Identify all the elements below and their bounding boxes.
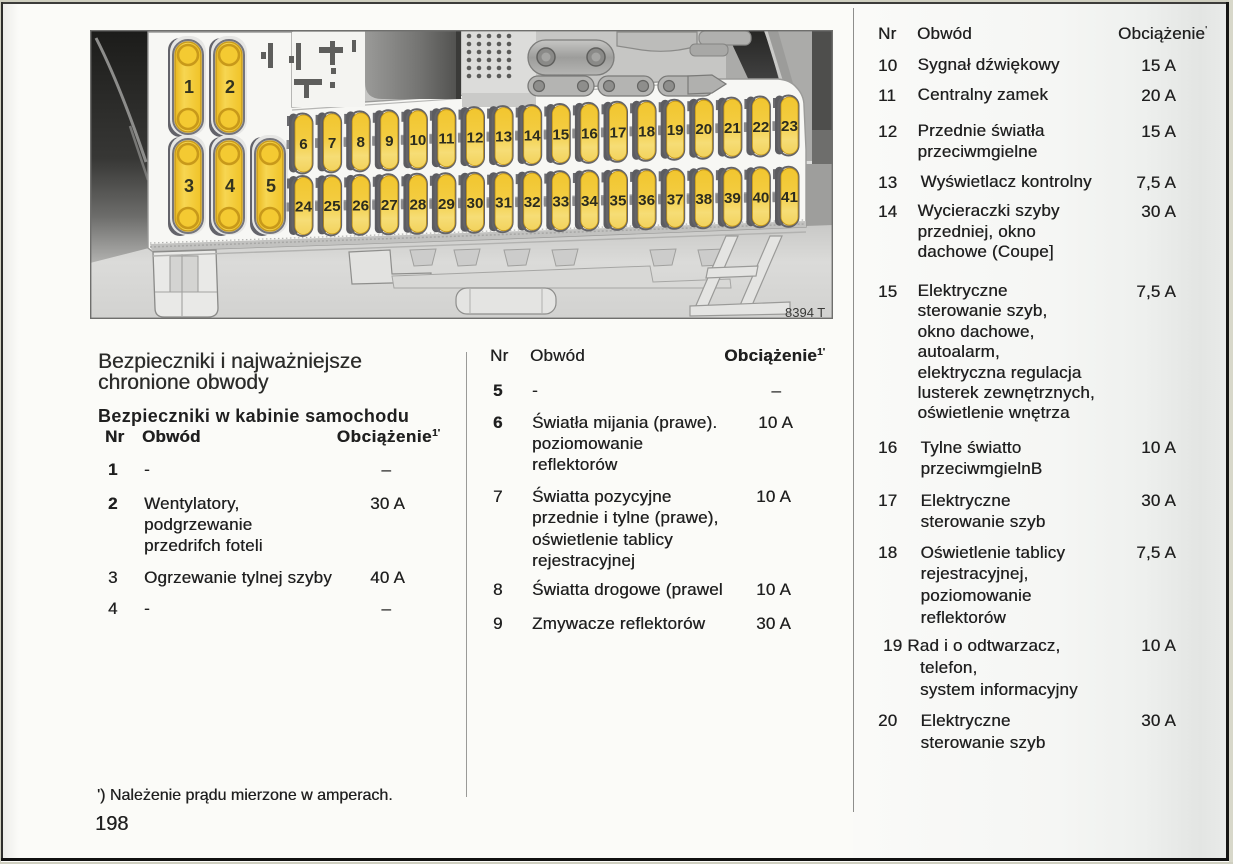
svg-text:14: 14 xyxy=(524,128,541,145)
svg-text:8394 T: 8394 T xyxy=(785,305,825,319)
svg-text:16: 16 xyxy=(581,125,598,142)
svg-text:41: 41 xyxy=(781,189,798,206)
svg-text:34: 34 xyxy=(581,193,598,210)
svg-text:30: 30 xyxy=(467,195,484,212)
svg-text:27: 27 xyxy=(381,197,398,214)
svg-text:5: 5 xyxy=(266,176,276,196)
svg-text:7: 7 xyxy=(328,135,336,152)
svg-text:17: 17 xyxy=(610,124,627,141)
svg-text:32: 32 xyxy=(524,194,541,211)
svg-text:11: 11 xyxy=(438,131,455,148)
svg-text:39: 39 xyxy=(724,190,741,207)
svg-text:15: 15 xyxy=(552,127,569,144)
svg-text:9: 9 xyxy=(385,133,393,150)
svg-text:12: 12 xyxy=(467,130,484,147)
svg-text:26: 26 xyxy=(352,197,369,214)
svg-text:24: 24 xyxy=(295,199,312,216)
svg-text:23: 23 xyxy=(781,118,798,135)
svg-text:33: 33 xyxy=(552,194,569,211)
svg-text:29: 29 xyxy=(438,196,455,213)
svg-text:22: 22 xyxy=(752,119,769,136)
svg-text:2: 2 xyxy=(225,77,235,97)
svg-text:19: 19 xyxy=(667,122,684,139)
svg-text:38: 38 xyxy=(695,191,712,208)
svg-text:40: 40 xyxy=(752,190,769,207)
svg-text:20: 20 xyxy=(695,121,712,138)
svg-text:28: 28 xyxy=(409,196,426,213)
svg-text:13: 13 xyxy=(495,129,512,146)
svg-text:10: 10 xyxy=(409,132,426,149)
svg-text:37: 37 xyxy=(667,191,684,208)
svg-text:31: 31 xyxy=(495,195,512,212)
svg-text:35: 35 xyxy=(610,192,627,209)
svg-text:21: 21 xyxy=(724,120,741,137)
svg-text:6: 6 xyxy=(299,136,307,153)
svg-text:25: 25 xyxy=(324,198,341,215)
svg-text:4: 4 xyxy=(225,176,235,196)
svg-text:18: 18 xyxy=(638,123,655,140)
svg-text:1: 1 xyxy=(184,77,194,97)
svg-text:36: 36 xyxy=(638,192,655,209)
svg-text:3: 3 xyxy=(184,176,194,196)
svg-text:8: 8 xyxy=(356,134,364,151)
